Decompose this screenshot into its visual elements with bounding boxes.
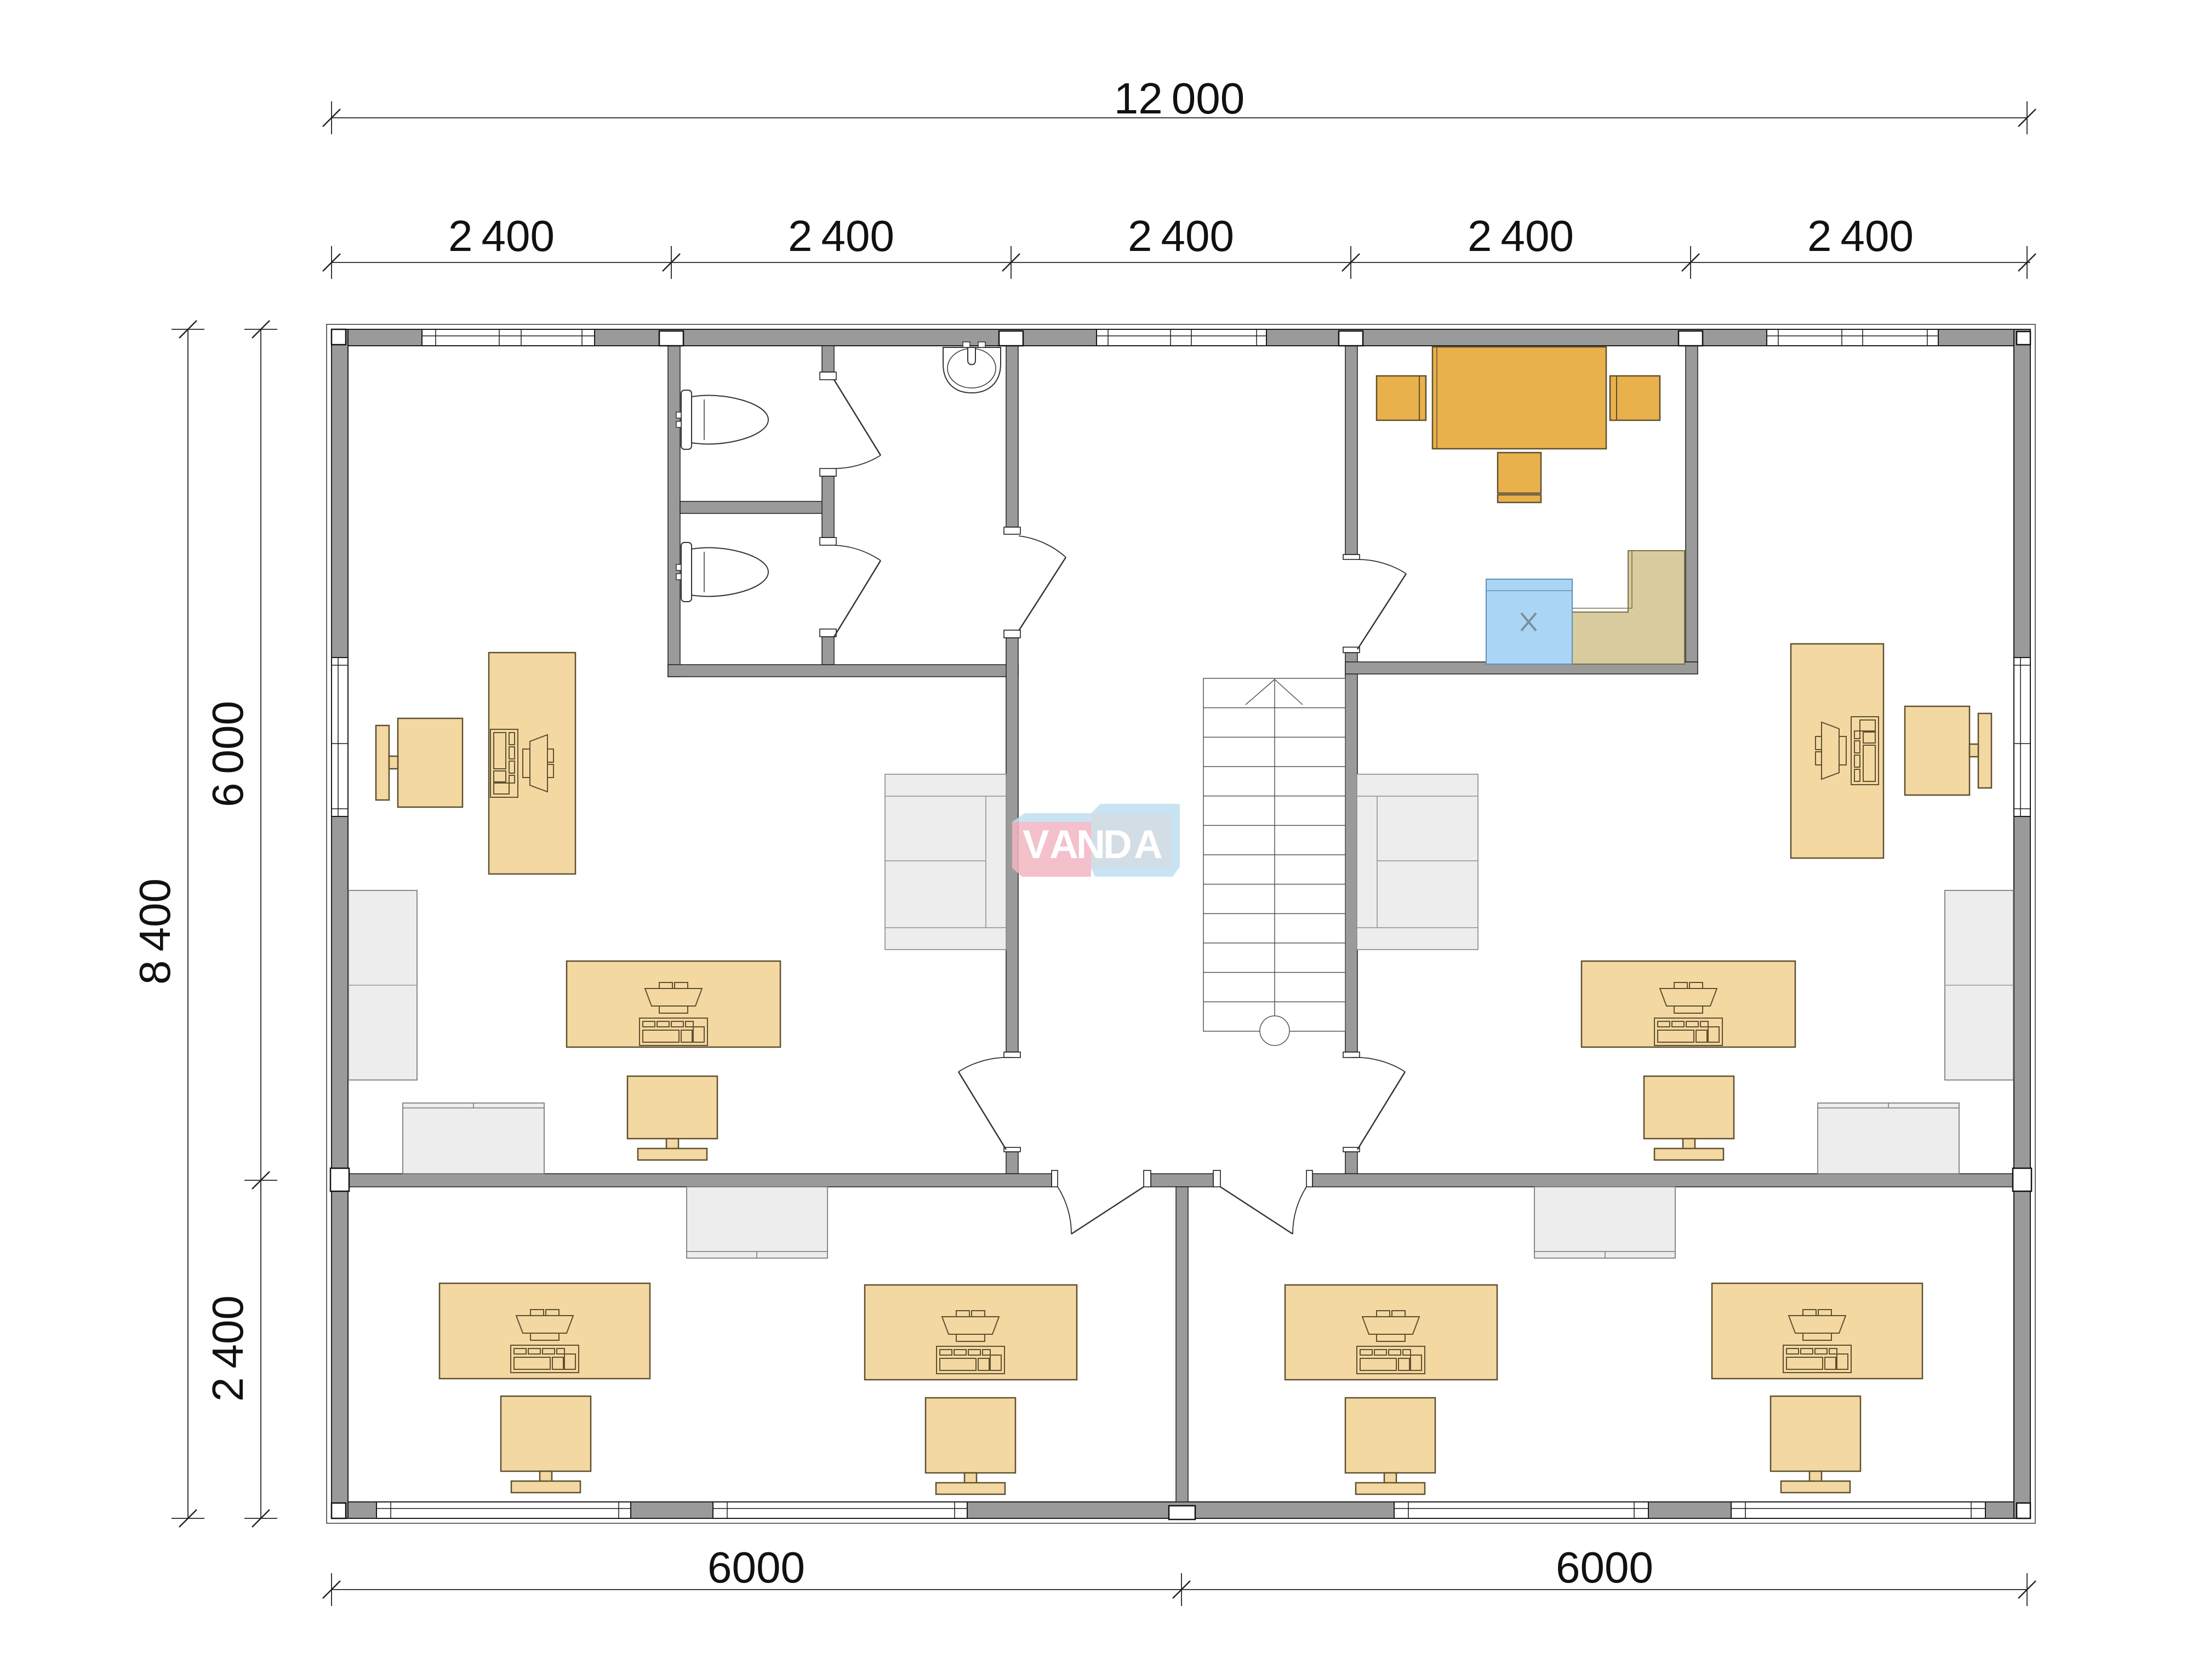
svg-text:8 400: 8 400 (130, 878, 179, 985)
svg-text:2 400: 2 400 (788, 212, 894, 260)
svg-text:6000: 6000 (1556, 1543, 1653, 1592)
svg-text:6000: 6000 (707, 1543, 805, 1592)
svg-text:6 000: 6 000 (203, 701, 252, 807)
svg-text:A: A (1049, 822, 1078, 867)
svg-text:N: N (1076, 822, 1105, 867)
svg-text:A: A (1134, 822, 1163, 867)
svg-text:2 400: 2 400 (448, 212, 555, 260)
svg-text:12 000: 12 000 (1114, 74, 1245, 123)
svg-text:V: V (1023, 822, 1049, 867)
svg-text:2 400: 2 400 (1128, 212, 1234, 260)
svg-text:2 400: 2 400 (1468, 212, 1574, 260)
svg-text:D: D (1103, 822, 1132, 867)
svg-text:2 400: 2 400 (1807, 212, 1914, 260)
svg-text:2 400: 2 400 (203, 1295, 252, 1402)
